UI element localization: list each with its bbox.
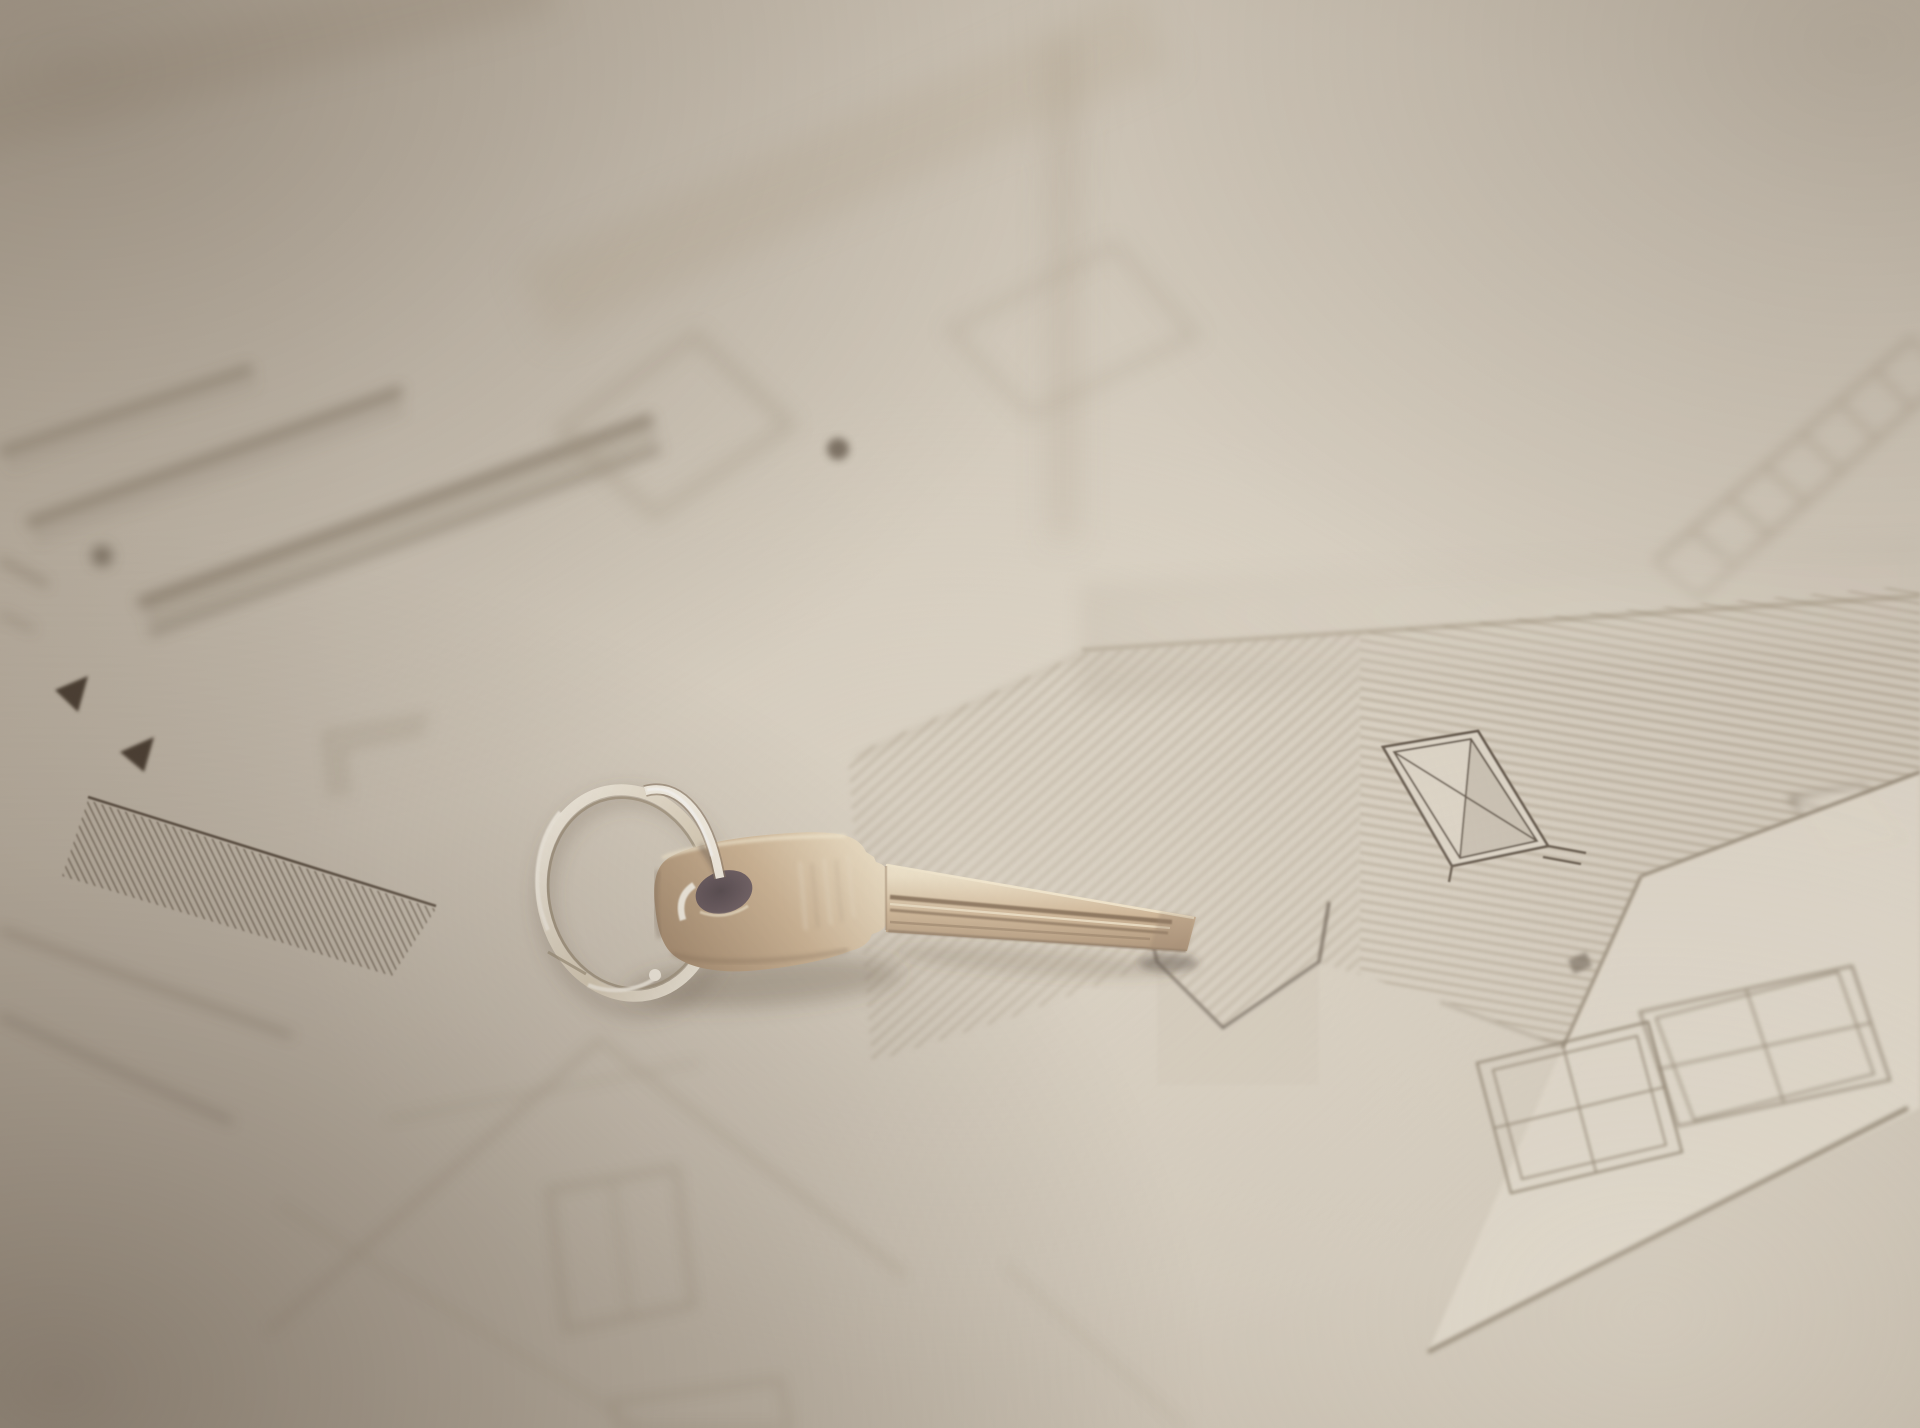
photo-blueprint-key xyxy=(0,0,1920,1428)
film-grain xyxy=(0,0,1920,1428)
photo-canvas xyxy=(0,0,1920,1428)
